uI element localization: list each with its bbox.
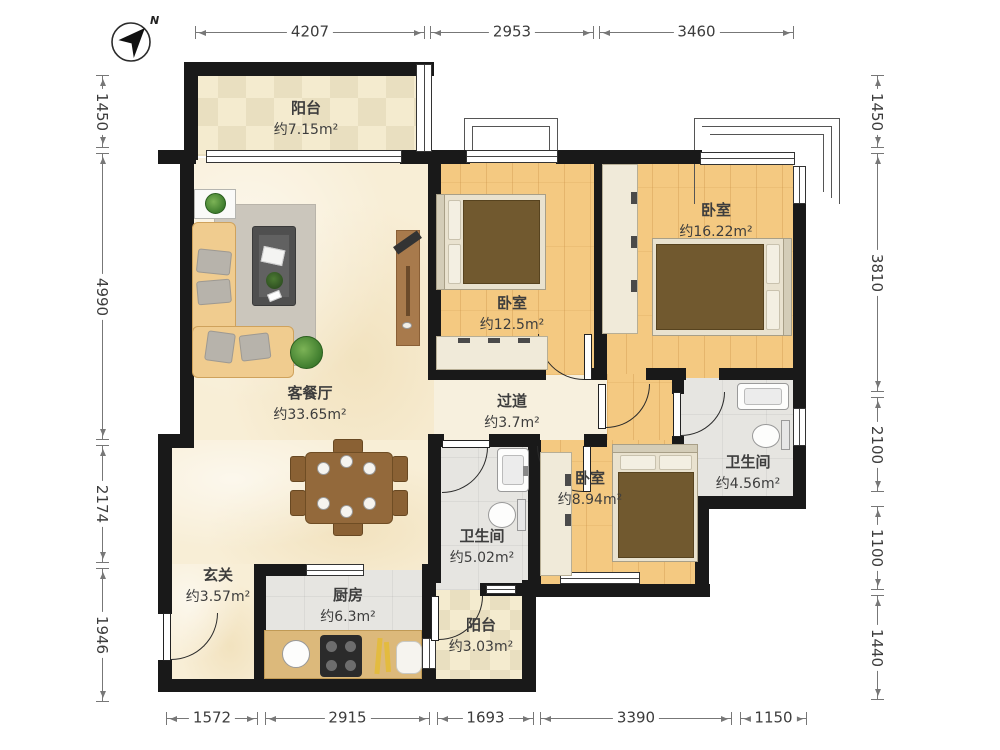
- room-label-bedroom-right: 卧室约16.22m²: [679, 199, 752, 241]
- door-leaf: [584, 334, 592, 380]
- dim-left-2: 4990: [94, 153, 110, 440]
- sink-basin: [744, 388, 782, 405]
- window: [466, 150, 558, 163]
- potted-plant-icon: [205, 193, 226, 214]
- window: [486, 585, 516, 594]
- window: [700, 152, 795, 165]
- plate: [317, 462, 330, 475]
- wall-segment: [254, 679, 436, 692]
- faucet-icon: [523, 466, 528, 476]
- wall-segment: [428, 440, 441, 583]
- dim-bottom-5: 1150: [740, 710, 807, 726]
- headboard: [783, 238, 792, 336]
- dim-right-4: 1100: [869, 506, 885, 590]
- wardrobe-handle: [631, 236, 637, 248]
- floorplan-canvas: N N: [0, 0, 1000, 750]
- cutting-board: [396, 641, 422, 674]
- window: [560, 572, 640, 584]
- door-leaf: [598, 384, 606, 429]
- wardrobe-handle: [631, 280, 637, 292]
- window: [793, 408, 806, 446]
- bay-window-outline: [472, 126, 550, 152]
- room-label-bath-mid: 卫生间约5.02m²: [450, 525, 514, 567]
- soundbar: [406, 266, 410, 316]
- sofa-cushion: [239, 332, 272, 361]
- wall-segment: [793, 200, 806, 380]
- dim-left-3: 2174: [94, 445, 110, 563]
- room-label-balcony-top: 阳台约7.15m²: [274, 97, 338, 139]
- door-leaf: [431, 596, 439, 641]
- dim-bottom-2: 2915: [265, 710, 430, 726]
- wardrobe: [602, 164, 638, 334]
- room-label-kitchen: 厨房约6.3m²: [320, 584, 376, 626]
- room-label-balcony-bottom: 阳台约3.03m²: [449, 614, 513, 656]
- wall-segment: [605, 150, 702, 164]
- plate: [363, 462, 376, 475]
- wardrobe-handle: [518, 338, 530, 343]
- wall-segment: [158, 434, 172, 614]
- dim-bottom-3: 1693: [437, 710, 534, 726]
- wall-segment: [184, 62, 434, 76]
- compass-icon: N: [104, 10, 164, 68]
- dining-chair: [290, 490, 306, 516]
- window: [306, 564, 364, 576]
- wall-segment: [590, 368, 606, 380]
- compass: N N: [104, 10, 164, 68]
- wardrobe-handle: [458, 338, 470, 343]
- dim-top-3: 3460: [599, 24, 794, 40]
- dim-top-2: 2953: [430, 24, 594, 40]
- wardrobe-handle: [488, 338, 500, 343]
- mattress: [463, 200, 540, 284]
- floor-plant-icon: [290, 336, 323, 369]
- sofa-cushion: [196, 279, 232, 306]
- cabinet-knob: [402, 322, 412, 329]
- room-label-bedroom-small: 卧室约8.94m²: [558, 467, 622, 509]
- toilet-tank: [781, 420, 790, 450]
- dim-top-1: 4207: [195, 24, 425, 40]
- room-label-bedroom-mid: 卧室约12.5m²: [480, 292, 544, 334]
- dim-right-1: 1450: [869, 75, 885, 148]
- wall-segment: [422, 679, 536, 692]
- wall-segment: [793, 444, 806, 499]
- room-label-living: 客餐厅约33.65m²: [273, 382, 346, 424]
- dim-bottom-4: 3390: [540, 710, 732, 726]
- dim-left-4: 1946: [94, 568, 110, 702]
- room-label-entry: 玄关约3.57m²: [186, 564, 250, 606]
- dim-right-2: 3810: [869, 153, 885, 392]
- wardrobe-handle: [565, 514, 571, 526]
- plate: [317, 497, 330, 510]
- kitchen-sink-icon: [282, 640, 310, 668]
- toilet-icon: [752, 424, 780, 448]
- sofa-cushion: [196, 248, 232, 275]
- dim-right-3: 2100: [869, 397, 885, 492]
- mattress: [656, 244, 764, 330]
- headboard: [612, 444, 698, 453]
- pillow: [448, 244, 461, 284]
- door-leaf: [673, 392, 681, 437]
- room-label-hallway: 过道约3.7m²: [484, 390, 540, 432]
- dim-bottom-1: 1572: [166, 710, 258, 726]
- plate: [363, 497, 376, 510]
- pillow: [766, 244, 780, 284]
- window: [793, 166, 806, 204]
- wall-segment: [528, 584, 710, 597]
- wardrobe-handle: [631, 192, 637, 204]
- compass-north-label: N: [150, 14, 159, 27]
- headboard: [436, 194, 445, 290]
- wall-segment: [672, 368, 684, 394]
- window: [206, 150, 402, 163]
- window: [416, 64, 432, 152]
- room-label-bath-right: 卫生间约4.56m²: [716, 451, 780, 493]
- pillow: [659, 455, 692, 470]
- mattress: [618, 472, 694, 558]
- stove-icon: [320, 635, 362, 677]
- plate: [340, 455, 353, 468]
- wall-segment: [184, 62, 198, 160]
- toilet-tank: [517, 499, 526, 531]
- wall-segment: [793, 368, 806, 410]
- dining-chair: [392, 490, 408, 516]
- dim-left-1: 1450: [94, 75, 110, 148]
- door-leaf: [163, 613, 171, 661]
- pillow: [448, 200, 461, 240]
- dining-chair: [392, 456, 408, 482]
- wall-segment: [428, 150, 470, 164]
- window: [422, 638, 436, 669]
- sofa-cushion: [204, 330, 236, 364]
- wall-segment: [254, 564, 308, 576]
- wall-segment: [158, 679, 268, 692]
- burner: [345, 660, 356, 671]
- burner: [326, 641, 337, 652]
- pillow: [766, 290, 780, 330]
- sink-basin: [502, 455, 524, 485]
- plate: [340, 505, 353, 518]
- dim-right-5: 1440: [869, 595, 885, 700]
- dining-chair: [290, 456, 306, 482]
- burner: [345, 641, 356, 652]
- pillow: [620, 455, 656, 470]
- table-plant-icon: [266, 272, 283, 289]
- burner: [326, 660, 337, 671]
